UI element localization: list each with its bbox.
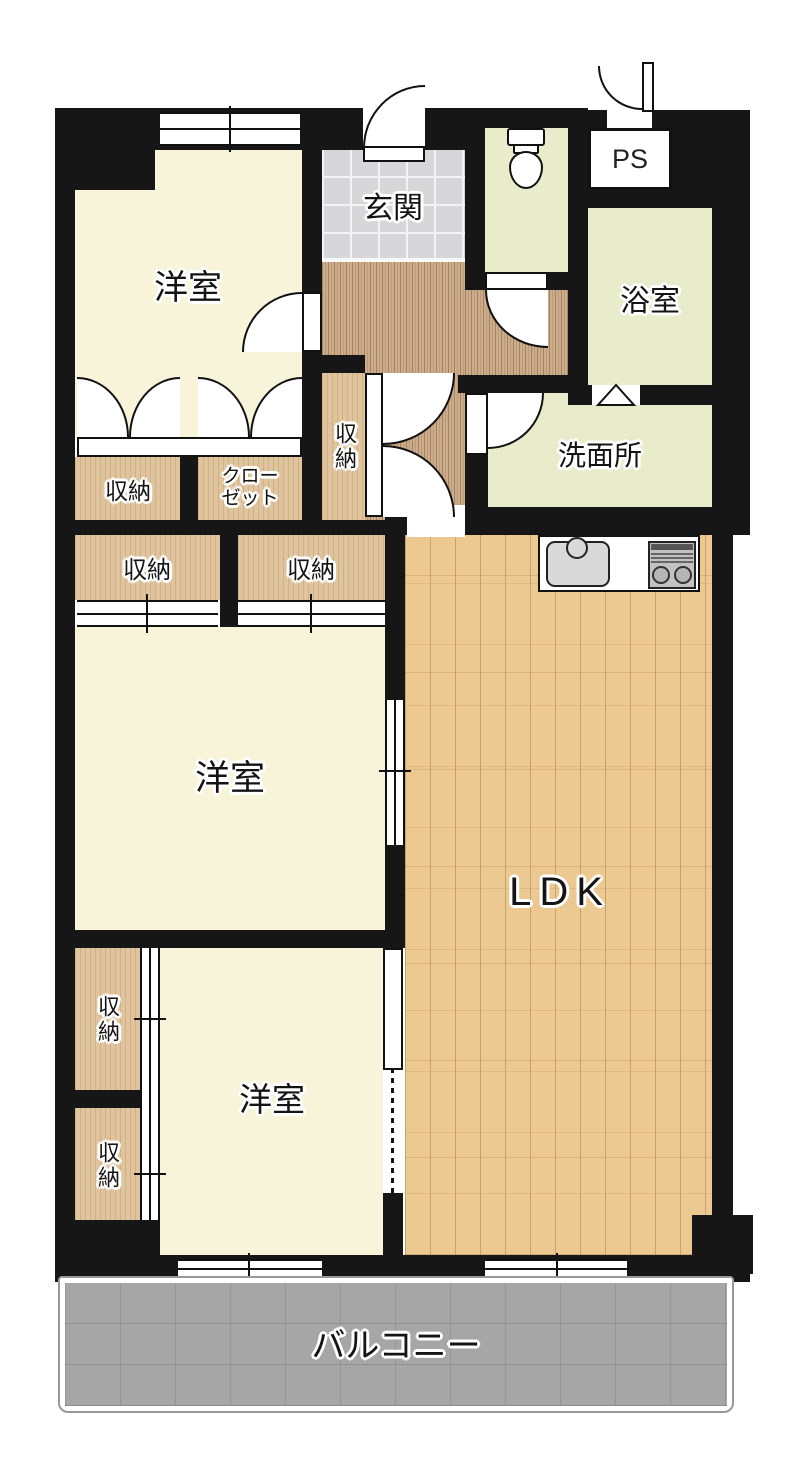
storage-label: 収納	[85, 474, 171, 504]
closet-label: クローゼット	[206, 456, 294, 520]
toilet-door-leaf	[485, 272, 548, 290]
stove-burner-icon	[652, 566, 670, 584]
wall-segment	[548, 272, 568, 290]
entrance-door-arc	[363, 85, 425, 148]
storage-label-hall: 収納	[326, 385, 362, 509]
wall-segment	[385, 535, 405, 700]
label-text: 玄関	[363, 183, 423, 227]
stove-burner-icon	[674, 566, 692, 584]
room-label-bathroom: 浴室	[588, 278, 712, 318]
sliding-panel-bottom	[383, 948, 403, 1070]
room-label-bedroom-top-left: 洋室	[118, 262, 258, 306]
window-tick	[229, 106, 231, 152]
storage-label-mid-right: 収納	[268, 552, 354, 582]
wall-segment	[692, 1215, 753, 1274]
wall-segment	[588, 190, 712, 208]
room-label-bedroom-center: 洋室	[160, 752, 300, 798]
wall-segment	[568, 190, 588, 405]
label-text: LDK	[509, 870, 611, 915]
room-label-ldk: LDK	[490, 868, 630, 916]
label-text: 洋室	[154, 260, 222, 309]
window-tick	[134, 1173, 166, 1175]
service-door-leaf	[642, 62, 654, 112]
label-text: 収納	[328, 422, 360, 472]
label-text: 浴室	[620, 276, 680, 320]
wall-segment	[485, 108, 568, 128]
label-text: 洋室	[195, 750, 265, 801]
closet-door-leaves	[77, 437, 302, 457]
pipe-space-label: PS	[612, 144, 648, 175]
room-label-washroom: 洗面所	[520, 435, 680, 473]
wall-segment	[465, 455, 488, 507]
storage-label-bottom-2: 収納	[89, 1112, 125, 1220]
window-tick	[310, 594, 312, 633]
wall-segment	[383, 1193, 403, 1255]
label-text: 収納	[287, 550, 335, 585]
balcony-label: バルコニー	[286, 1320, 506, 1364]
wall-segment	[712, 507, 733, 1215]
wall-segment	[465, 108, 485, 290]
room-label-bedroom-bottom: 洋室	[202, 1075, 342, 1119]
service-door-arc	[598, 66, 642, 110]
hall-storage-door-leaves	[365, 373, 383, 517]
label-text: 収納	[91, 995, 123, 1045]
label-text: 収納	[123, 550, 171, 585]
sliding-track-bottom-storage	[140, 948, 160, 1220]
stove-grate-icon	[651, 553, 693, 563]
label-text: 収納	[105, 472, 151, 506]
window-tick	[134, 1018, 166, 1020]
washroom-door-leaf	[465, 393, 488, 455]
wall-segment	[55, 520, 385, 535]
label-text: 収納	[91, 1141, 123, 1191]
window-tick	[379, 770, 411, 772]
wall-segment	[458, 375, 568, 393]
stove-grill-icon	[651, 544, 693, 550]
sliding-door-center-ldk	[385, 700, 405, 845]
room-label-entrance: 玄関	[328, 185, 458, 225]
pipe-space-box: PS	[588, 128, 672, 190]
wall-segment	[322, 355, 365, 373]
wall-segment	[712, 190, 750, 507]
label-text: クローゼット	[221, 466, 278, 510]
storage-label-bottom-1: 収納	[89, 958, 125, 1082]
bedroom-topleft-door-leaf	[302, 292, 322, 352]
label-text: 洗面所	[558, 434, 642, 474]
floorplan-canvas: PS 洋室 玄関 浴室 洗面所 収納 クローゼット 収納 収納 収納 洋室 LD…	[0, 0, 788, 1477]
wall-segment	[55, 930, 405, 948]
bathroom-folding-door-icon	[592, 383, 640, 407]
door-gap	[607, 110, 652, 128]
window-tick	[146, 594, 148, 633]
wall-segment	[465, 507, 750, 535]
kitchen-faucet-icon	[566, 537, 588, 559]
storage-label-mid-left: 収納	[104, 552, 190, 582]
open-partition-dashed	[383, 1070, 403, 1193]
label-text: 洋室	[239, 1073, 305, 1121]
label-text: バルコニー	[311, 1318, 480, 1367]
wall-segment	[220, 535, 238, 627]
entrance-door-leaf	[363, 146, 425, 162]
